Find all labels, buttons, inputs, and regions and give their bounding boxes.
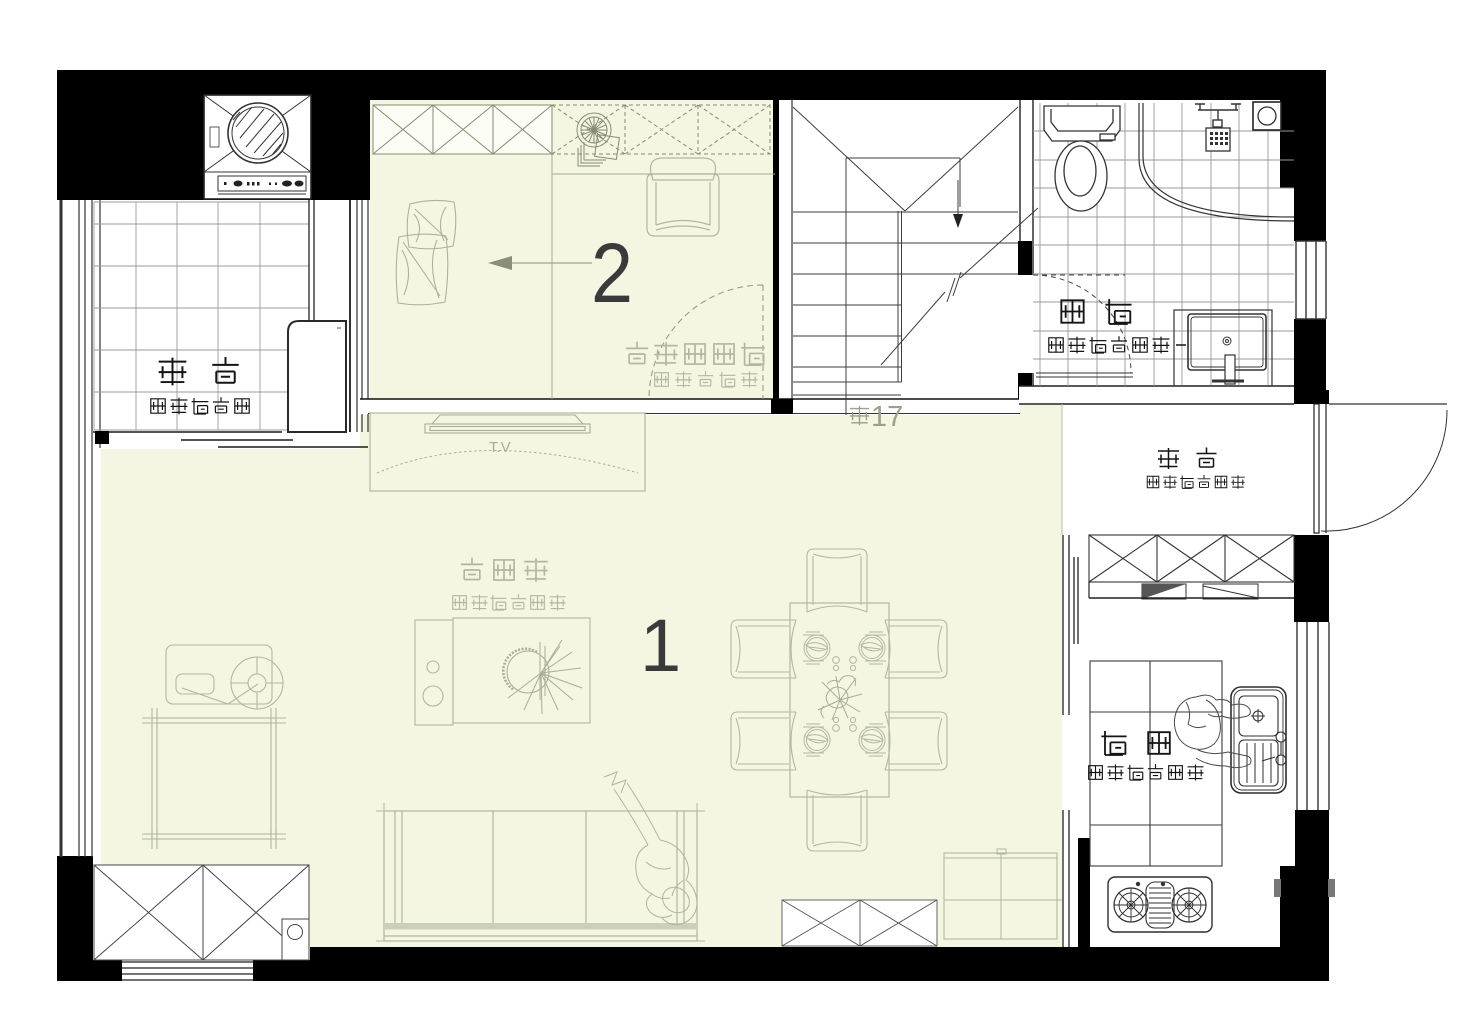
svg-text:2: 2 <box>591 226 633 320</box>
svg-text:17: 17 <box>871 401 903 433</box>
svg-text:1: 1 <box>640 604 681 687</box>
svg-text:T.V: T.V <box>489 439 511 456</box>
